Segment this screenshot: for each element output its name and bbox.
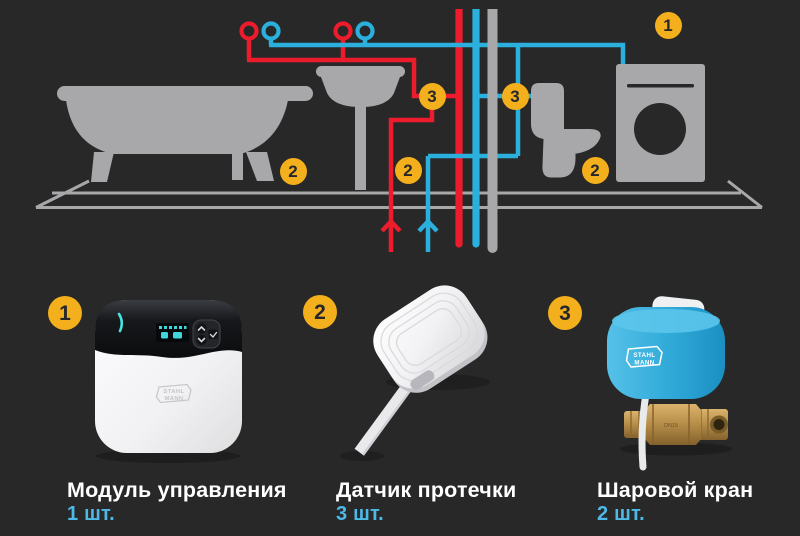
product-qty-leak-sensor: 3 шт. bbox=[336, 503, 384, 526]
leak-protection-infographic: STAHL MANN bbox=[0, 0, 800, 536]
diagram-badge-3-hot: 3 bbox=[419, 83, 446, 110]
diagram-badge-2-bathtub: 2 bbox=[280, 158, 307, 185]
product-qty-ball-valve: 2 шт. bbox=[597, 503, 645, 526]
washing-machine-icon bbox=[616, 64, 705, 182]
diagram-badge-1: 1 bbox=[655, 12, 682, 39]
leak-sensor-image bbox=[340, 275, 497, 461]
product-badge-3: 3 bbox=[548, 296, 582, 330]
brand-text: STAHL bbox=[633, 352, 655, 359]
ball-valve-image: DN15 STAHL MANN bbox=[607, 295, 732, 467]
product-name-leak-sensor: Датчик протечки bbox=[336, 478, 516, 503]
product-name-control-module: Модуль управления bbox=[67, 478, 287, 503]
shutoff-valve-icon bbox=[264, 24, 279, 39]
diagram-badge-3-cold: 3 bbox=[502, 83, 529, 110]
diagram-badge-2-toilet: 2 bbox=[582, 157, 609, 184]
product-name-ball-valve: Шаровой кран bbox=[597, 478, 753, 503]
bathtub-icon bbox=[57, 86, 313, 182]
valve-cable bbox=[642, 394, 646, 467]
brand-text: MANN bbox=[634, 360, 654, 367]
floor-line bbox=[36, 181, 762, 208]
drain-riser-pipe bbox=[488, 9, 498, 253]
product-qty-control-module: 1 шт. bbox=[67, 503, 115, 526]
product-badge-1: 1 bbox=[48, 296, 82, 330]
shutoff-valve-icon bbox=[242, 24, 257, 39]
shutoff-valve-icon bbox=[358, 24, 373, 39]
module-screen bbox=[156, 323, 189, 342]
valve-marking-text: DN15 bbox=[664, 423, 678, 429]
brand-text: STAHL bbox=[164, 389, 185, 395]
shutoff-valve-icon bbox=[336, 24, 351, 39]
control-module-image: STAHL MANN bbox=[95, 300, 242, 463]
bathroom-schematic bbox=[36, 9, 762, 253]
brand-text: MANN bbox=[165, 396, 184, 402]
diagram-badge-2-center: 2 bbox=[395, 157, 422, 184]
diagram-artwork: STAHL MANN bbox=[0, 0, 800, 536]
product-badge-2: 2 bbox=[303, 295, 337, 329]
module-buttons bbox=[193, 320, 220, 348]
